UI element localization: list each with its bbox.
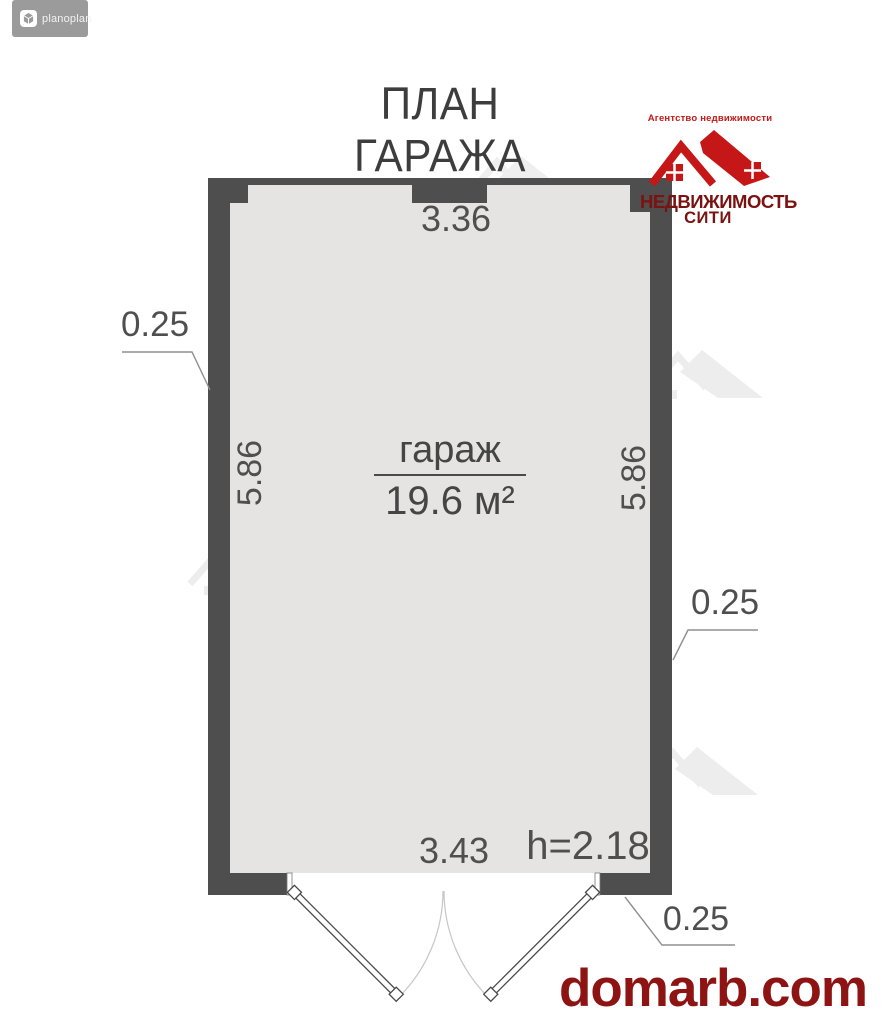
dimension-left-height: 5.86	[231, 433, 267, 513]
dimension-right-height: 5.86	[615, 438, 651, 518]
logo-window-right	[744, 162, 761, 179]
left-door-leaf	[287, 885, 403, 1001]
left-wall	[208, 178, 230, 895]
planoplan-cube-icon	[20, 10, 37, 27]
agency-name-line2: СИТИ	[640, 209, 776, 228]
room-label: гараж 19.6 м²	[374, 429, 526, 524]
plan-title: ПЛАН ГАРАЖА	[290, 78, 591, 182]
agency-house-logo	[652, 130, 770, 186]
dimension-ceiling-height: h=2.18	[522, 824, 654, 869]
right-door-arc	[444, 891, 488, 997]
site-watermark: domarb.com	[540, 958, 885, 1019]
room-name: гараж	[374, 429, 526, 476]
dimension-door-opening-width: 3.43	[413, 830, 495, 872]
logo-window-left	[666, 164, 683, 181]
left-door-arc	[399, 891, 443, 997]
right-wall	[650, 178, 672, 895]
bottom-wall-right-segment	[600, 873, 672, 895]
dimension-bottom-wall-thickness: 0.25	[657, 900, 735, 939]
door-swing-arcs	[399, 891, 488, 997]
dimension-right-wall-thickness: 0.25	[687, 583, 763, 623]
bottom-wall-left-segment	[208, 873, 287, 895]
garage-floor-plan-page: planoplan ПЛАН ГАРАЖА Агентство недвижим…	[0, 0, 885, 1035]
left-thickness-leader	[122, 352, 210, 390]
planoplan-badge: planoplan	[12, 0, 88, 37]
agency-tagline: Агентство недвижимости	[646, 113, 774, 124]
dimension-top-width: 3.36	[406, 198, 506, 240]
top-left-pilaster	[208, 178, 248, 203]
dimension-left-wall-thickness: 0.25	[118, 305, 192, 345]
garage-floor	[230, 184, 650, 873]
room-area: 19.6 м²	[374, 479, 526, 524]
right-thickness-leader	[673, 630, 758, 660]
planoplan-label: planoplan	[42, 13, 92, 25]
